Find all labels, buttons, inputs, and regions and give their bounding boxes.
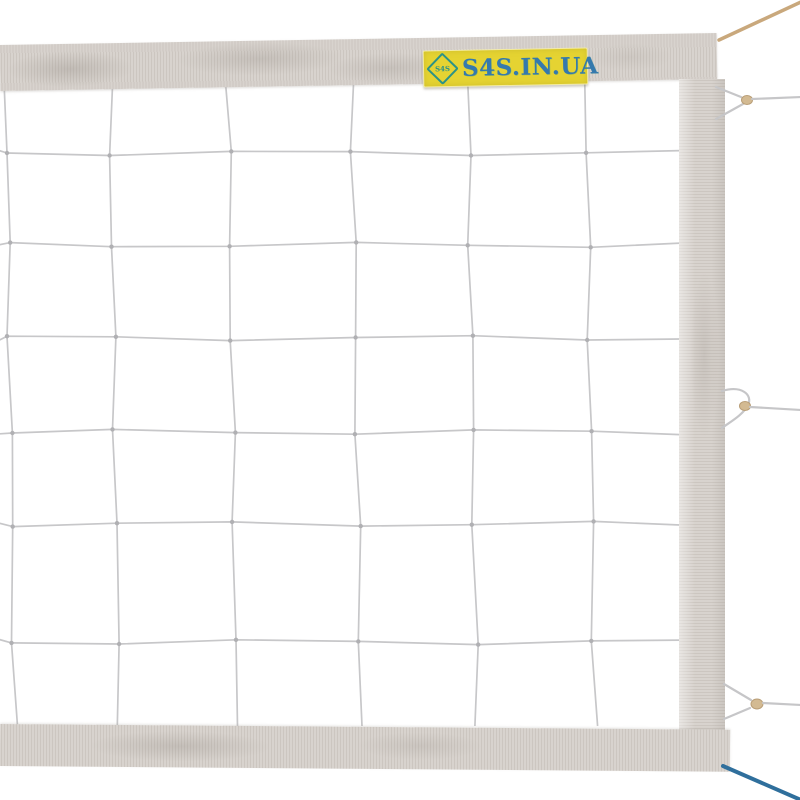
attachment-loop-bottom [724,684,800,719]
rigging [0,0,800,800]
loop-knot-bead [742,96,753,105]
product-photo: S4S S4S.IN.UA [0,0,800,800]
loop-knot-bead [740,402,751,411]
attachment-loop-middle [722,389,800,428]
top-tension-cord [719,2,800,40]
bottom-tension-cord [723,766,800,800]
attachment-loop-top [716,87,800,119]
loop-knot-bead [751,699,763,709]
